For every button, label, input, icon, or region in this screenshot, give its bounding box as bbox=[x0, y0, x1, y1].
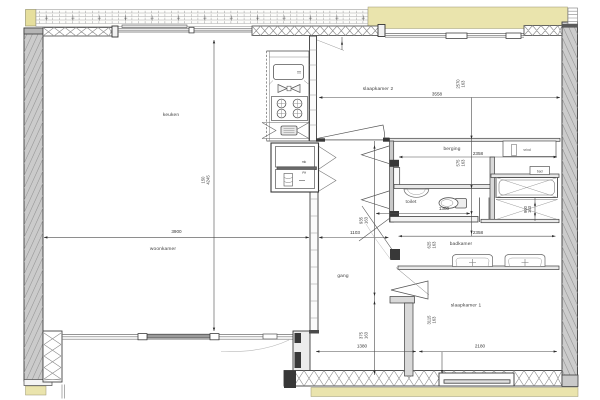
svg-text:163: 163 bbox=[431, 316, 436, 324]
svg-text:163: 163 bbox=[431, 241, 436, 249]
svg-text:toilet: toilet bbox=[405, 199, 417, 205]
svg-text:2180: 2180 bbox=[475, 343, 486, 348]
svg-text:3558: 3558 bbox=[432, 92, 443, 97]
svg-text:slaapkamer 2: slaapkamer 2 bbox=[363, 86, 394, 92]
svg-text:badkamer: badkamer bbox=[450, 241, 473, 247]
svg-text:slaapkamer 1: slaapkamer 1 bbox=[451, 303, 482, 309]
svg-text:vr/vd: vr/vd bbox=[523, 148, 530, 152]
svg-text:4245: 4245 bbox=[205, 175, 210, 185]
svg-text:berging: berging bbox=[443, 146, 460, 152]
svg-text:163: 163 bbox=[363, 331, 368, 339]
svg-text:mk: mk bbox=[302, 160, 307, 164]
svg-text:163: 163 bbox=[460, 80, 465, 88]
svg-text:163: 163 bbox=[363, 216, 368, 224]
svg-text:2358: 2358 bbox=[473, 151, 484, 156]
svg-text:163: 163 bbox=[460, 159, 465, 167]
svg-text:3900: 3900 bbox=[171, 229, 182, 234]
svg-text:1103: 1103 bbox=[350, 230, 360, 235]
svg-text:163: 163 bbox=[527, 205, 532, 213]
svg-text:2358: 2358 bbox=[473, 230, 484, 235]
svg-text:1380: 1380 bbox=[439, 206, 450, 211]
svg-text:bad: bad bbox=[537, 169, 543, 173]
svg-text:1380: 1380 bbox=[357, 343, 368, 348]
svg-text:gang: gang bbox=[337, 274, 348, 279]
svg-text:woonkamer: woonkamer bbox=[150, 246, 176, 252]
svg-text:keuken: keuken bbox=[163, 112, 180, 118]
svg-text:vw: vw bbox=[302, 171, 307, 175]
